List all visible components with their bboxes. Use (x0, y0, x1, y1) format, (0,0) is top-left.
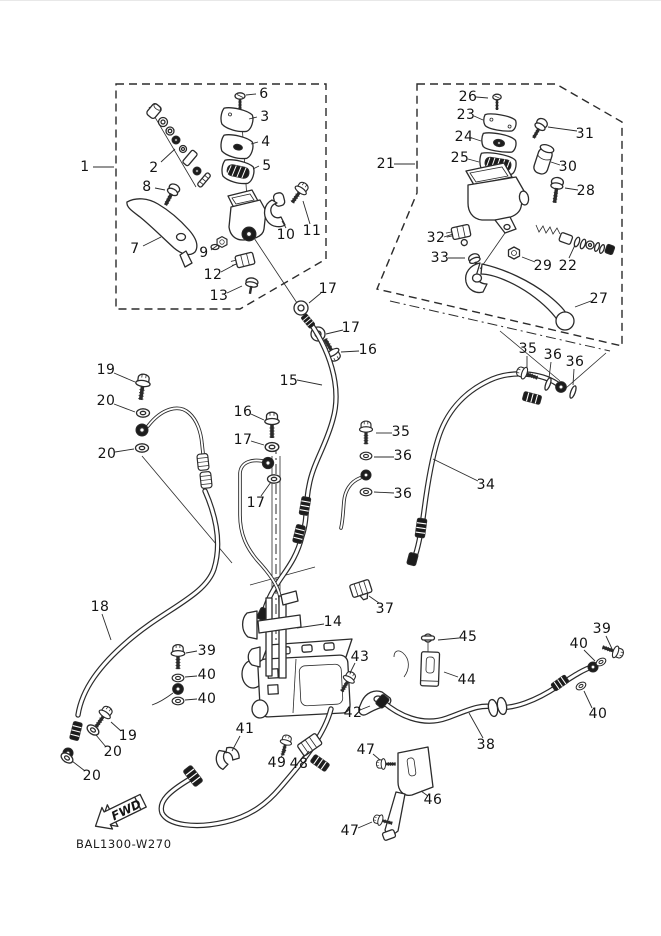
part-label-40: 40 (570, 636, 589, 652)
part-label-26: 26 (459, 89, 478, 105)
part-label-35: 35 (392, 424, 411, 440)
washer-36 (569, 385, 578, 399)
part-label-43: 43 (351, 649, 370, 665)
part-label-20: 20 (104, 744, 123, 760)
part-label-44: 44 (458, 672, 477, 688)
part-label-24: 24 (455, 129, 474, 145)
hose-38-fitting (551, 675, 570, 692)
part-label-36: 36 (566, 354, 585, 370)
part-label-12: 12 (204, 267, 223, 283)
part-label-3: 3 (260, 109, 269, 125)
part-label-40: 40 (198, 691, 217, 707)
part-label-8: 8 (142, 179, 151, 195)
bracket-44 (420, 652, 439, 687)
part-label-9: 9 (199, 245, 208, 261)
part-label-20: 20 (98, 446, 117, 462)
reservoir-cap-3 (219, 106, 255, 134)
part-label-17: 17 (342, 320, 361, 336)
part-label-7: 7 (130, 241, 139, 257)
hose-15-coupler (292, 524, 305, 544)
part-label-42: 42 (344, 705, 363, 721)
bolt-49 (277, 734, 293, 757)
switch-screw-13 (244, 277, 259, 295)
part-label-1: 1 (80, 159, 89, 175)
washer-36 (360, 452, 372, 460)
part-label-40: 40 (198, 667, 217, 683)
part-label-18: 18 (91, 599, 110, 615)
reservoir-cap-23 (482, 112, 517, 132)
washer-17 (294, 301, 308, 315)
part-label-40: 40 (589, 706, 608, 722)
part-label-20: 20 (97, 393, 116, 409)
part-label-41: 41 (236, 721, 255, 737)
nut-29 (509, 247, 520, 259)
part-label-46: 46 (424, 792, 443, 808)
part-label-48: 48 (290, 756, 309, 772)
washer-40 (172, 674, 184, 682)
bolt-16 (265, 412, 279, 438)
part-label-21: 21 (377, 156, 396, 172)
part-label-5: 5 (262, 158, 271, 174)
part-label-17: 17 (247, 495, 266, 511)
bolt-31 (529, 117, 549, 141)
part-label-47: 47 (357, 742, 376, 758)
bolt-39 (171, 645, 185, 670)
washer-17 (268, 475, 281, 483)
hose-holder-30 (532, 143, 554, 175)
piston-kit-22 (536, 225, 615, 255)
part-label-20: 20 (83, 768, 102, 784)
clamp-bolt-11 (287, 180, 311, 206)
washer-20 (136, 444, 149, 452)
pipe-coupler (200, 471, 212, 488)
part-label-37: 37 (376, 601, 395, 617)
diaphragm-5 (220, 158, 256, 186)
part-label-16: 16 (359, 342, 378, 358)
sensor-bolt-45 (422, 634, 435, 652)
part-label-35: 35 (519, 341, 538, 357)
part-label-27: 27 (590, 291, 609, 307)
bolt-47 (376, 759, 395, 770)
part-label-11: 11 (303, 223, 322, 239)
part-label-4: 4 (261, 134, 270, 150)
part-label-22: 22 (559, 258, 578, 274)
part-label-36: 36 (394, 448, 413, 464)
nut-9 (211, 237, 227, 250)
bolt-35 (360, 421, 373, 444)
master-cylinder-body-21 (466, 163, 530, 233)
parts-diagram-page: FWD 123456789101112131415161617171717181… (0, 0, 661, 936)
adjuster-bolt-8 (161, 182, 182, 207)
washer-17 (265, 443, 279, 452)
banjo-eye (136, 424, 148, 436)
part-label-49: 49 (268, 755, 287, 771)
part-label-19: 19 (97, 362, 116, 378)
hose-15-coupler (299, 496, 311, 515)
banjo-eye (361, 470, 371, 480)
part-label-36: 36 (544, 347, 563, 363)
banjo-eye (556, 382, 567, 393)
screw-6 (235, 93, 245, 110)
fwd-direction-tag: FWD (89, 790, 148, 835)
cap-plate-24 (480, 131, 517, 154)
hose-clamp-41 (214, 745, 240, 772)
parts-diagram-canvas: FWD (0, 1, 661, 936)
part-label-31: 31 (576, 126, 595, 142)
brake-switch-32 (445, 224, 473, 249)
part-label-30: 30 (559, 159, 578, 175)
cap-plate-4 (219, 133, 255, 161)
part-label-39: 39 (593, 621, 612, 637)
part-label-29: 29 (534, 258, 553, 274)
hose-15-fitting (301, 313, 315, 328)
banjo-eye (173, 684, 184, 695)
pipe-coupler (197, 453, 209, 470)
hose-34-coupler (415, 518, 427, 538)
part-label-34: 34 (477, 477, 496, 493)
part-label-17: 17 (319, 281, 338, 297)
part-label-45: 45 (459, 629, 478, 645)
part-label-47: 47 (341, 823, 360, 839)
part-label-38: 38 (477, 737, 496, 753)
part-label-36: 36 (394, 486, 413, 502)
part-label-28: 28 (577, 183, 596, 199)
hose-18-fitting (69, 721, 82, 741)
part-label-32: 32 (427, 230, 446, 246)
hose-clamp-37 (349, 579, 374, 602)
part-label-17: 17 (234, 432, 253, 448)
part-label-16: 16 (234, 404, 253, 420)
part-label-6: 6 (259, 86, 268, 102)
banjo-eye (262, 457, 273, 468)
bolt-19 (134, 373, 152, 401)
washer-40 (172, 697, 184, 705)
hose-coupler (310, 754, 330, 772)
brake-switch-12 (230, 252, 255, 269)
part-label-10: 10 (277, 227, 296, 243)
part-label-15: 15 (280, 373, 299, 389)
screw-26 (493, 94, 501, 110)
hose-34-coupler (522, 391, 542, 404)
part-label-39: 39 (198, 643, 217, 659)
washer-40 (575, 680, 587, 691)
part-label-23: 23 (457, 107, 476, 123)
washer-20 (137, 409, 150, 417)
diagram-code: BAL1300-W270 (76, 837, 172, 851)
part-label-19: 19 (119, 728, 138, 744)
part-label-25: 25 (451, 150, 470, 166)
part-label-14: 14 (324, 614, 343, 630)
master-cylinder-body-1 (228, 190, 266, 241)
part-label-2: 2 (149, 160, 158, 176)
part-label-33: 33 (431, 250, 450, 266)
hose-34-end (407, 552, 419, 566)
part-label-13: 13 (210, 288, 229, 304)
bolt-28 (549, 177, 564, 204)
washer-36 (360, 488, 372, 496)
